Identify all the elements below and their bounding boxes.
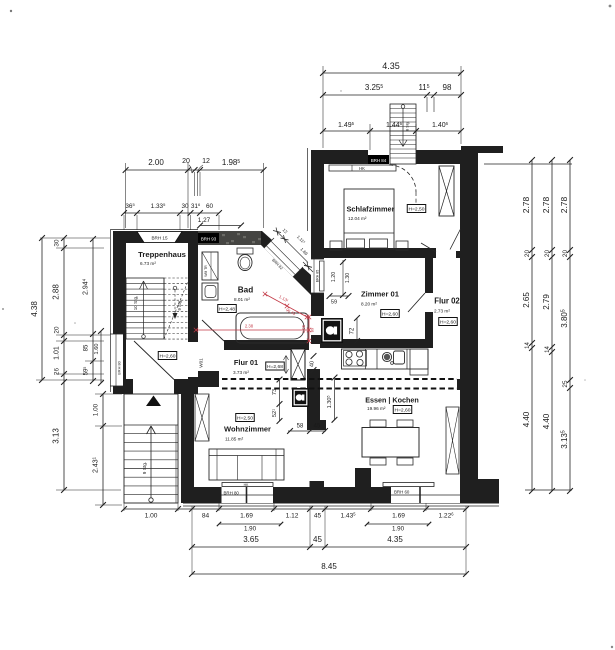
svg-text:1.69: 1.69: [392, 513, 405, 520]
svg-text:1.00: 1.00: [93, 403, 100, 416]
svg-text:1.60: 1.60: [94, 344, 100, 355]
svg-text:20: 20: [524, 250, 531, 258]
svg-text:HK: HK: [244, 483, 249, 487]
svg-text:Zimmer 01: Zimmer 01: [361, 290, 400, 299]
svg-text:H=2,60: H=2,60: [382, 312, 398, 318]
svg-text:4.35: 4.35: [382, 61, 400, 71]
svg-text:H=2,48: H=2,48: [219, 307, 235, 313]
svg-text:BRH 85: BRH 85: [316, 270, 320, 283]
svg-text:HK: HK: [359, 166, 365, 171]
svg-text:6.73 m²: 6.73 m²: [140, 261, 156, 266]
svg-text:BRH 60: BRH 60: [394, 490, 410, 495]
svg-text:89: 89: [310, 327, 315, 332]
svg-text:H=2,50: H=2,50: [237, 416, 253, 422]
svg-text:Flur 02: Flur 02: [434, 297, 460, 306]
svg-text:60: 60: [206, 203, 214, 210]
svg-text:Wohnzimmer: Wohnzimmer: [224, 425, 271, 434]
svg-text:30: 30: [181, 203, 189, 210]
svg-text:1.27: 1.27: [198, 217, 211, 224]
svg-text:Schlafzimmer: Schlafzimmer: [346, 205, 394, 214]
svg-text:9 Stg.: 9 Stg.: [142, 462, 148, 475]
svg-text:BRH 80: BRH 80: [117, 360, 122, 374]
svg-text:1.01: 1.01: [54, 346, 61, 360]
svg-text:30: 30: [54, 239, 61, 247]
svg-text:2.78: 2.78: [559, 196, 569, 213]
svg-text:1.69: 1.69: [240, 513, 253, 520]
svg-text:73: 73: [272, 389, 278, 395]
svg-text:BRH 15: BRH 15: [151, 236, 168, 241]
svg-text:12.04 m²: 12.04 m²: [348, 216, 367, 221]
svg-text:1.06: 1.06: [301, 324, 306, 333]
svg-text:4.40: 4.40: [542, 413, 551, 429]
svg-text:H=2,60: H=2,60: [395, 408, 411, 414]
svg-text:4.40: 4.40: [522, 411, 531, 427]
svg-text:2.38: 2.38: [245, 324, 254, 329]
svg-text:BRH 84: BRH 84: [371, 158, 387, 163]
svg-text:1.12: 1.12: [286, 513, 299, 520]
svg-text:20: 20: [182, 158, 190, 165]
svg-text:Bad: Bad: [238, 286, 253, 295]
svg-text:19.96 m²: 19.96 m²: [367, 406, 386, 411]
svg-text:20: 20: [562, 250, 569, 258]
svg-text:WM TR: WM TR: [204, 265, 208, 277]
svg-text:45: 45: [314, 424, 321, 430]
svg-text:3.73 m²: 3.73 m²: [233, 370, 249, 375]
svg-text:84: 84: [202, 513, 210, 520]
svg-text:H=2,68: H=2,68: [267, 364, 283, 370]
svg-text:4.38: 4.38: [30, 301, 39, 317]
svg-text:9 Stg,: 9 Stg,: [177, 300, 182, 311]
svg-text:8.01 m²: 8.01 m²: [234, 297, 250, 302]
svg-text:2.78: 2.78: [521, 196, 531, 213]
svg-text:BRH 80: BRH 80: [224, 491, 240, 496]
svg-text:W01: W01: [199, 358, 204, 368]
svg-text:H=2,50: H=2,50: [409, 207, 425, 213]
svg-text:2.78: 2.78: [541, 196, 551, 213]
svg-text:20: 20: [544, 250, 551, 258]
svg-text:1.30: 1.30: [345, 273, 351, 283]
svg-text:72: 72: [350, 327, 356, 334]
svg-text:45: 45: [314, 513, 322, 520]
svg-text:1.90: 1.90: [244, 526, 257, 533]
svg-text:8 Stg.: 8 Stg.: [406, 121, 410, 130]
svg-text:3.13: 3.13: [52, 428, 61, 444]
svg-text:11.85 m²: 11.85 m²: [225, 437, 244, 442]
svg-text:Treppenhaus: Treppenhaus: [138, 250, 186, 259]
svg-text:45: 45: [313, 535, 322, 544]
svg-text:2.00: 2.00: [148, 158, 164, 167]
svg-text:58: 58: [297, 424, 304, 430]
svg-text:BRH 93: BRH 93: [201, 237, 217, 242]
svg-text:3.65: 3.65: [243, 535, 259, 544]
svg-text:14: 14: [525, 342, 531, 349]
svg-text:2.73 m²: 2.73 m²: [434, 309, 450, 314]
svg-text:59: 59: [331, 300, 337, 306]
svg-text:25: 25: [562, 380, 569, 388]
svg-text:20: 20: [54, 326, 61, 334]
svg-text:98: 98: [443, 83, 452, 92]
svg-text:85: 85: [84, 344, 90, 351]
svg-text:H=2,60: H=2,60: [440, 320, 456, 326]
svg-text:8.20 m²: 8.20 m²: [361, 302, 377, 307]
svg-text:40: 40: [310, 361, 316, 367]
svg-text:1.00: 1.00: [145, 513, 158, 520]
svg-text:2.88: 2.88: [52, 284, 61, 300]
svg-text:1.90: 1.90: [392, 526, 405, 533]
svg-text:2.79: 2.79: [542, 294, 551, 310]
svg-text:12: 12: [202, 158, 210, 165]
svg-text:Essen | Kochen: Essen | Kochen: [365, 396, 419, 405]
svg-text:14: 14: [545, 346, 551, 353]
svg-text:8.45: 8.45: [321, 562, 337, 571]
svg-text:2.65: 2.65: [522, 292, 531, 308]
svg-text:4.35: 4.35: [387, 535, 403, 544]
svg-text:1.20: 1.20: [331, 272, 337, 282]
svg-text:Flur 01: Flur 01: [234, 358, 258, 367]
svg-text:10 Stg,: 10 Stg,: [133, 296, 138, 311]
svg-text:H=2,60: H=2,60: [160, 354, 176, 360]
